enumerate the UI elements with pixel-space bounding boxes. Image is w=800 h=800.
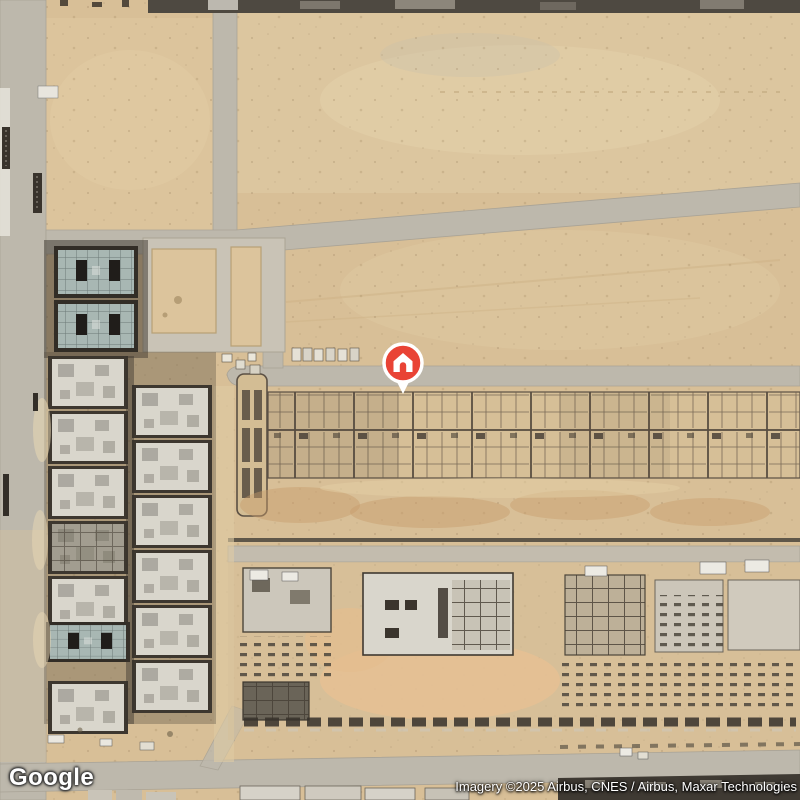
home-location-pin[interactable] — [379, 340, 427, 398]
satellite-map[interactable]: Google Imagery ©2025 Airbus, CNES / Airb… — [0, 0, 800, 800]
top-edge-buildings — [60, 0, 800, 13]
concrete-pad — [143, 238, 285, 352]
google-logo[interactable]: Google — [9, 764, 94, 792]
foundation-plots-strip — [237, 374, 800, 528]
imagery-attribution: Imagery ©2025 Airbus, CNES / Airbus, Max… — [455, 779, 797, 794]
terrain-layer — [0, 0, 800, 800]
construction-zone — [228, 560, 800, 759]
home-pin-icon — [379, 340, 427, 398]
